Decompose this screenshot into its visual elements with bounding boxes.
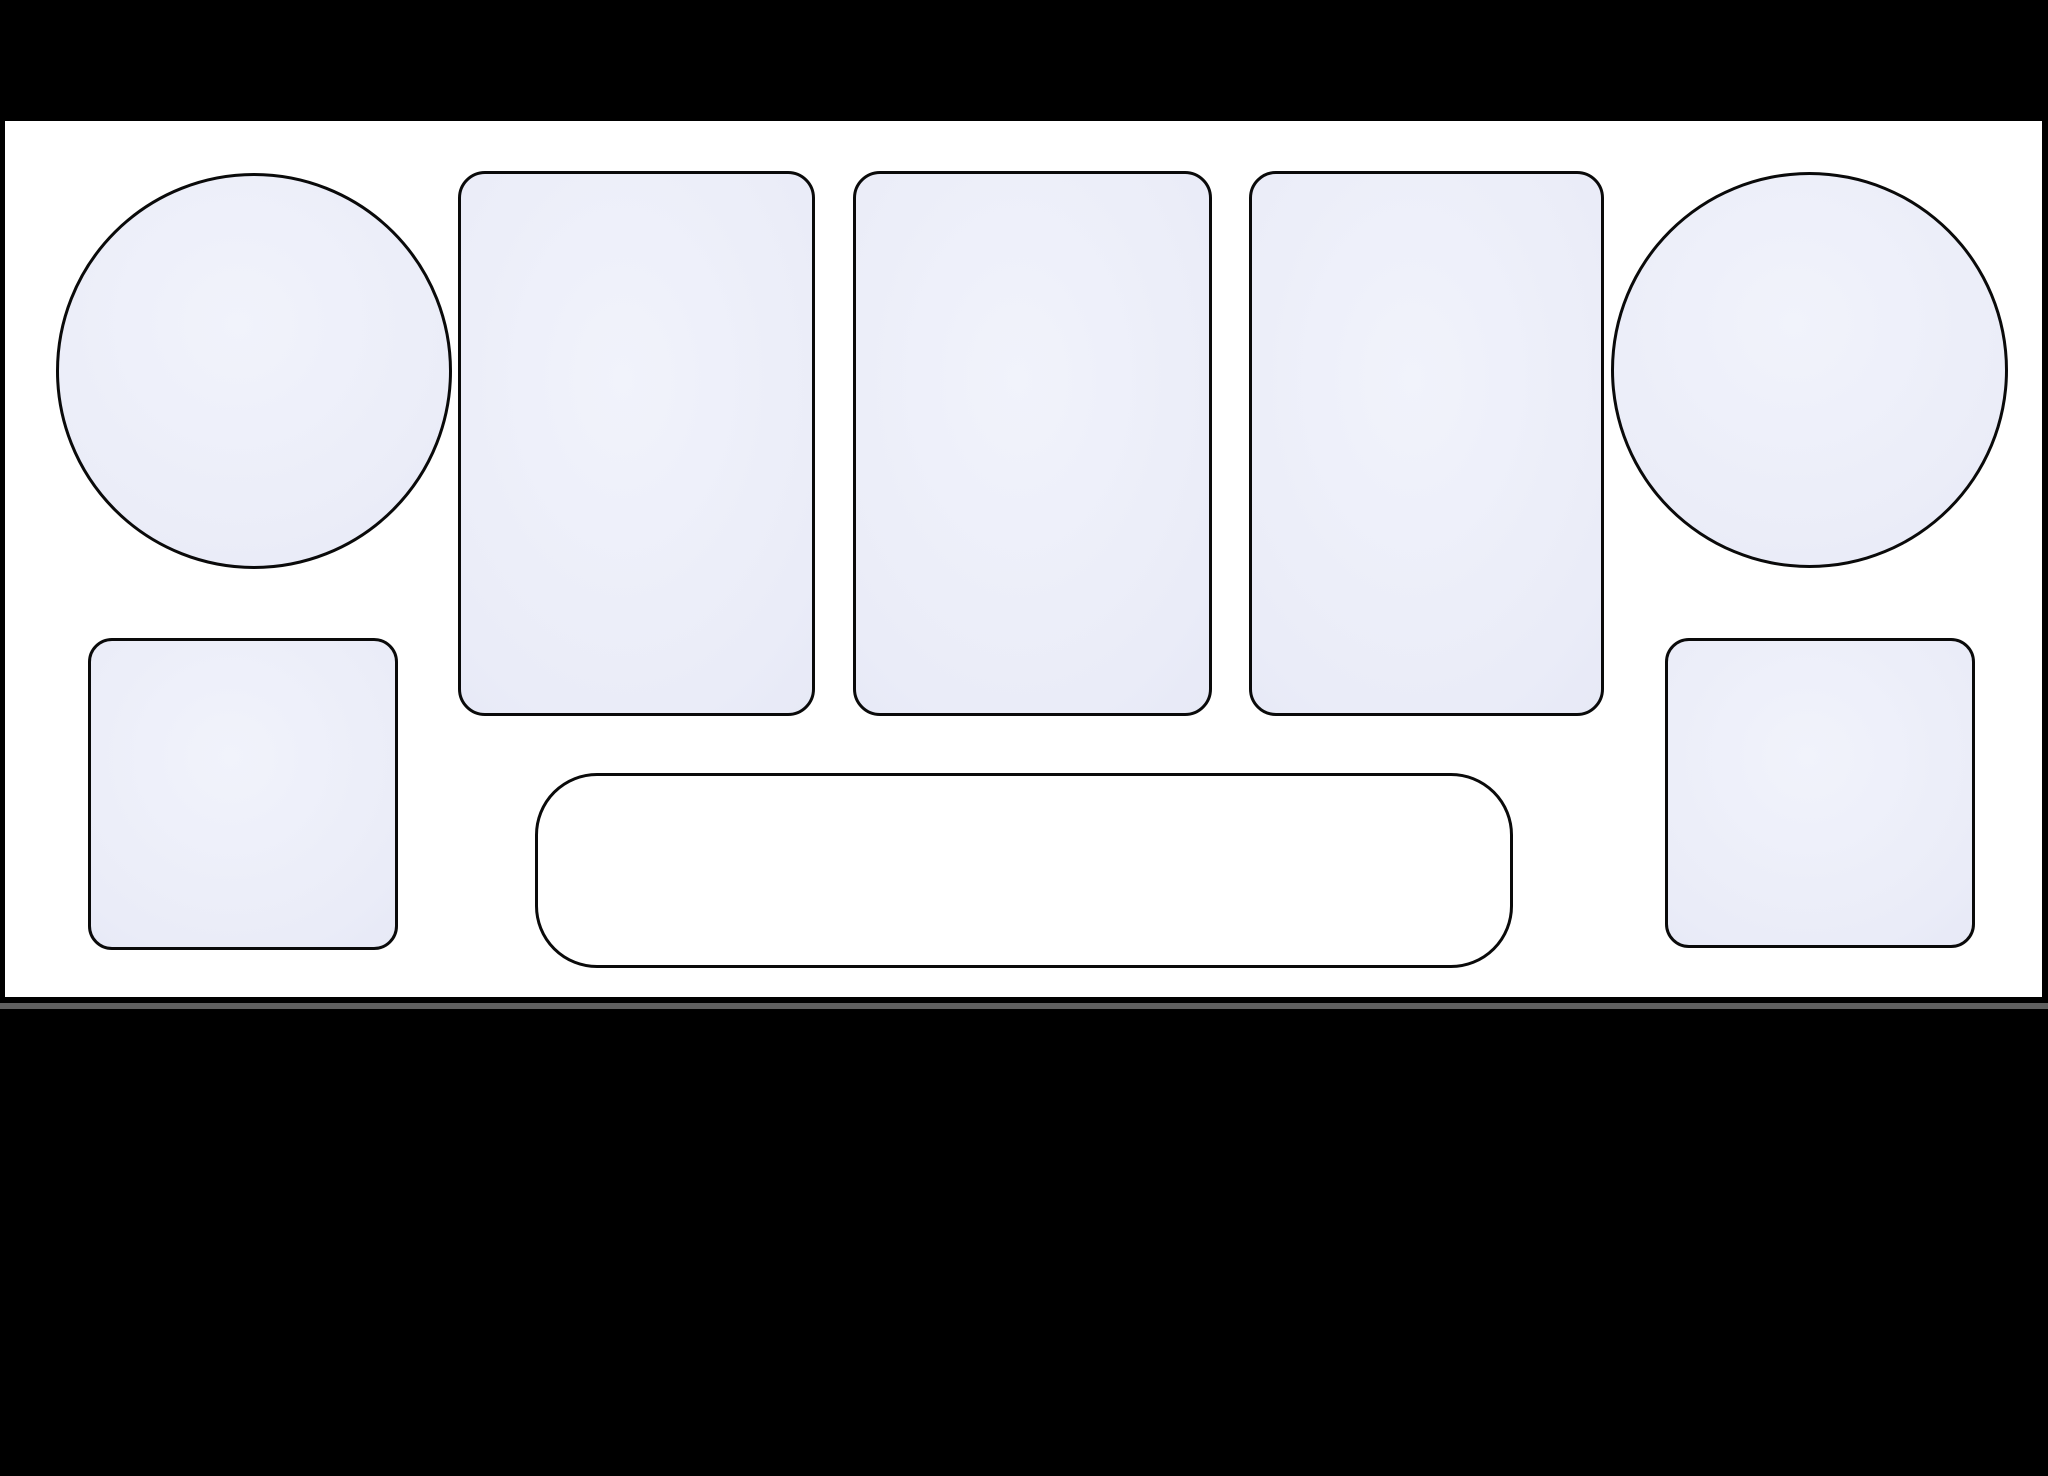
- right-square-zone[interactable]: [1665, 638, 1975, 948]
- left-square-zone[interactable]: [88, 638, 398, 950]
- left-circle-zone[interactable]: [56, 173, 452, 569]
- bottom-tray[interactable]: [535, 773, 1513, 968]
- card-slot-2[interactable]: [853, 171, 1212, 716]
- bottom-divider-line: [0, 1003, 2048, 1009]
- right-circle-zone[interactable]: [1611, 172, 2008, 568]
- card-slot-1[interactable]: [458, 171, 815, 716]
- screen-background: [0, 0, 2048, 1476]
- card-slot-3[interactable]: [1249, 171, 1604, 716]
